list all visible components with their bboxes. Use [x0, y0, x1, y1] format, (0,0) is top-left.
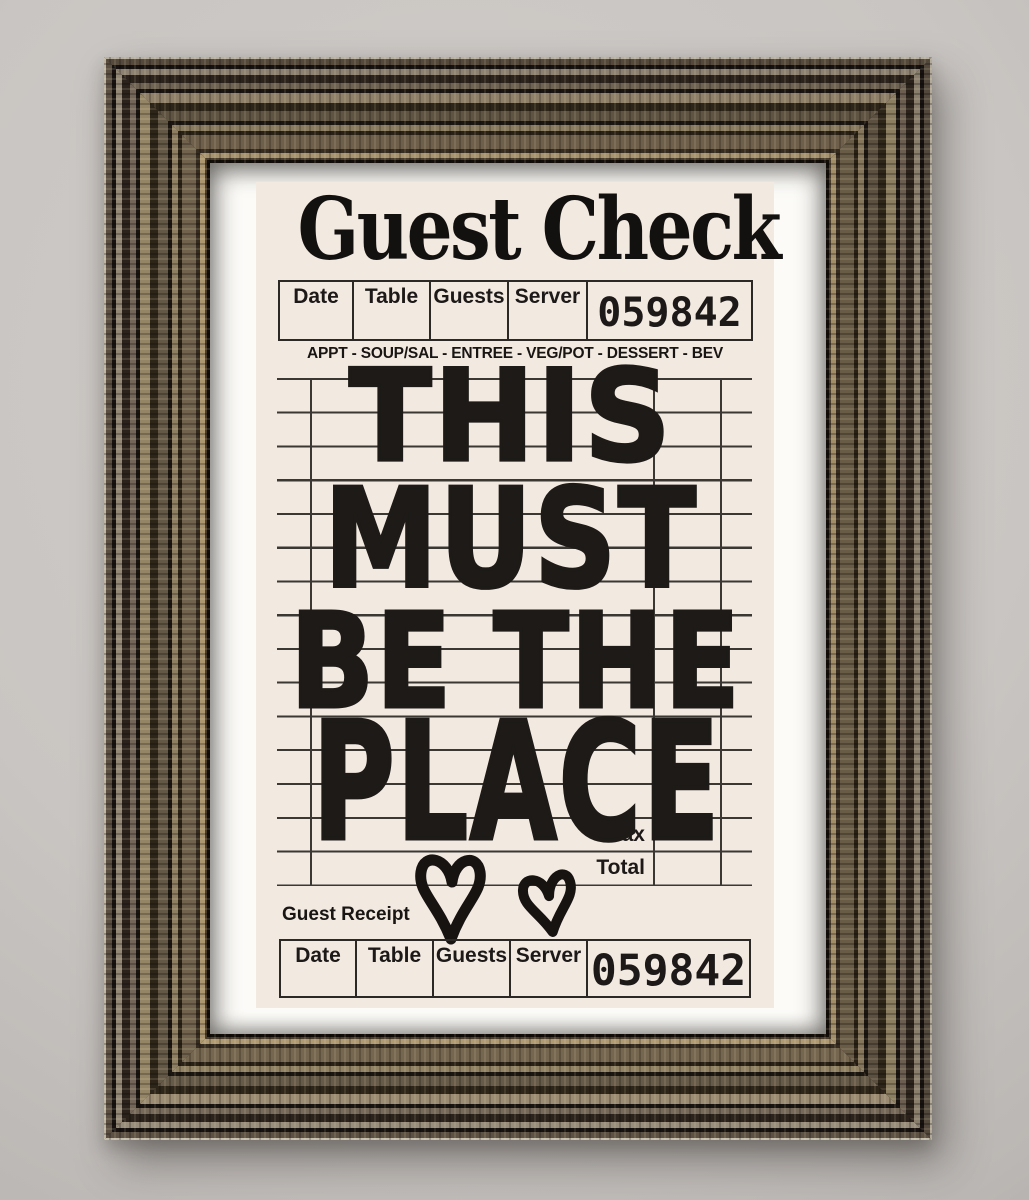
quote-line-place: PLACE: [258, 702, 776, 864]
receipt-number: 059842: [588, 941, 749, 996]
receipt-cell-date: Date: [281, 941, 357, 996]
header-cell-guests: Guests: [431, 282, 509, 339]
header-cell-date: Date: [280, 282, 354, 339]
header-cell-table: Table: [354, 282, 431, 339]
frame-edge-right: [826, 57, 932, 1140]
header-cell-server: Server: [509, 282, 588, 339]
receipt-cell-table: Table: [357, 941, 434, 996]
receipt-cell-guests: Guests: [434, 941, 511, 996]
guest-receipt-label: Guest Receipt: [282, 904, 410, 926]
guest-check-title: Guest Check: [297, 187, 732, 273]
mat-board: Guest Check Date Table Guests Server 059…: [210, 163, 826, 1034]
frame-edge-left: [104, 57, 210, 1140]
receipt-table: Date Table Guests Server 059842: [279, 939, 751, 998]
frame-edge-bottom: [104, 1034, 932, 1140]
guest-check-print: Guest Check Date Table Guests Server 059…: [256, 182, 774, 1008]
check-number: 059842: [588, 282, 751, 339]
receipt-cell-server: Server: [511, 941, 588, 996]
header-table: Date Table Guests Server 059842: [278, 280, 753, 341]
picture-frame: Guest Check Date Table Guests Server 059…: [104, 57, 932, 1140]
frame-edge-top: [104, 57, 932, 163]
